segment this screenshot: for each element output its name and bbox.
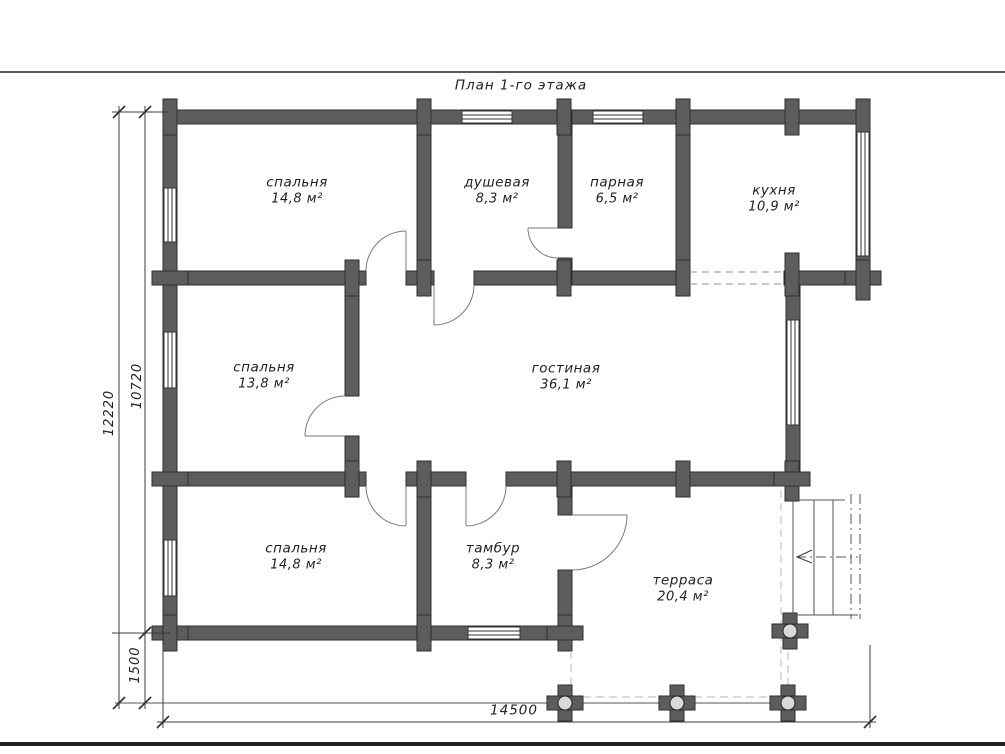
room-name: парная [590, 174, 644, 191]
window-living-right [787, 320, 799, 425]
window-kitchen-right [857, 132, 869, 256]
wall-steam-kitchen [676, 110, 690, 285]
room-area: 13,8 м² [233, 376, 295, 392]
room-name: гостиная [532, 360, 601, 377]
door-vestibule-living [466, 486, 506, 526]
room-label-bedroom-bottom: спальня 14,8 м² [265, 540, 327, 573]
terrace-post-bottom-middle [659, 685, 695, 721]
terrace-post-bottom-left [547, 685, 583, 721]
terrace-post-top-right [772, 613, 808, 649]
room-name: спальня [233, 359, 295, 376]
wall-bedroom2-living-a [345, 285, 359, 396]
room-label-steam-room: парная 6,5 м² [590, 174, 644, 207]
door-shower-steam [528, 228, 558, 258]
floor-plan-page: План 1-го этажа спальня 14,8 м² душевая … [0, 0, 1005, 754]
dim-label-terrace-offset: 1500 [128, 646, 144, 683]
plan-title: План 1-го этажа [455, 78, 587, 95]
door-bedroom-top [366, 231, 406, 271]
window-bedroom-middle-left [164, 332, 176, 388]
wall-mid-3 [474, 271, 690, 285]
room-area: 14,8 м² [265, 557, 327, 573]
window-shower-top [462, 111, 512, 123]
room-label-bedroom-top: спальня 14,8 м² [266, 174, 328, 207]
door-shower-living [434, 285, 474, 325]
dim-label-house-height: 10720 [130, 363, 146, 409]
room-label-kitchen: кухня 10,9 м² [748, 182, 800, 215]
room-area: 20,4 м² [653, 589, 714, 605]
room-name: терраса [653, 572, 714, 589]
door-vestibule-terrace [572, 515, 627, 570]
wall-mid-1 [163, 271, 366, 285]
wall-top [163, 110, 870, 124]
room-area: 36,1 м² [532, 377, 601, 393]
stairs [793, 494, 860, 620]
room-label-terrace: терраса 20,4 м² [653, 572, 714, 605]
room-area: 6,5 м² [590, 191, 644, 207]
wall-lower-1 [163, 472, 366, 486]
room-area: 14,8 м² [266, 191, 328, 207]
room-area: 10,9 м² [748, 199, 800, 215]
kitchen-opening-dashed [690, 272, 784, 284]
wall-lower-3 [506, 472, 795, 486]
room-name: кухня [748, 182, 800, 199]
window-bedroom-top-left [164, 188, 176, 242]
dim-label-overall-width: 14500 [490, 703, 538, 720]
dim-label-overall-height: 12220 [102, 390, 118, 436]
frame-lines [0, 72, 1005, 744]
room-label-vestibule: тамбур 8,3 м² [466, 540, 520, 573]
room-name: спальня [266, 174, 328, 191]
room-name: душевая [464, 174, 530, 191]
room-area: 8,3 м² [466, 557, 520, 573]
terrace-posts [547, 613, 808, 721]
room-label-bedroom-middle: спальня 13,8 м² [233, 359, 295, 392]
wall-lower-2 [406, 472, 466, 486]
door-bedroom-bottom [366, 486, 406, 526]
door-bedroom-middle [305, 396, 345, 436]
room-label-shower: душевая 8,3 м² [464, 174, 530, 207]
window-bedroom-bottom-left [164, 540, 176, 596]
terrace-post-bottom-right [770, 685, 806, 721]
room-label-living-room: гостиная 36,1 м² [532, 360, 601, 393]
room-area: 8,3 м² [464, 191, 530, 207]
wall-bedroom-shower [417, 110, 431, 285]
floor-plan-drawing [0, 0, 1005, 754]
window-vestibule-bottom [468, 627, 520, 639]
window-steam-top [593, 111, 643, 123]
room-name: спальня [265, 540, 327, 557]
room-name: тамбур [466, 540, 520, 557]
